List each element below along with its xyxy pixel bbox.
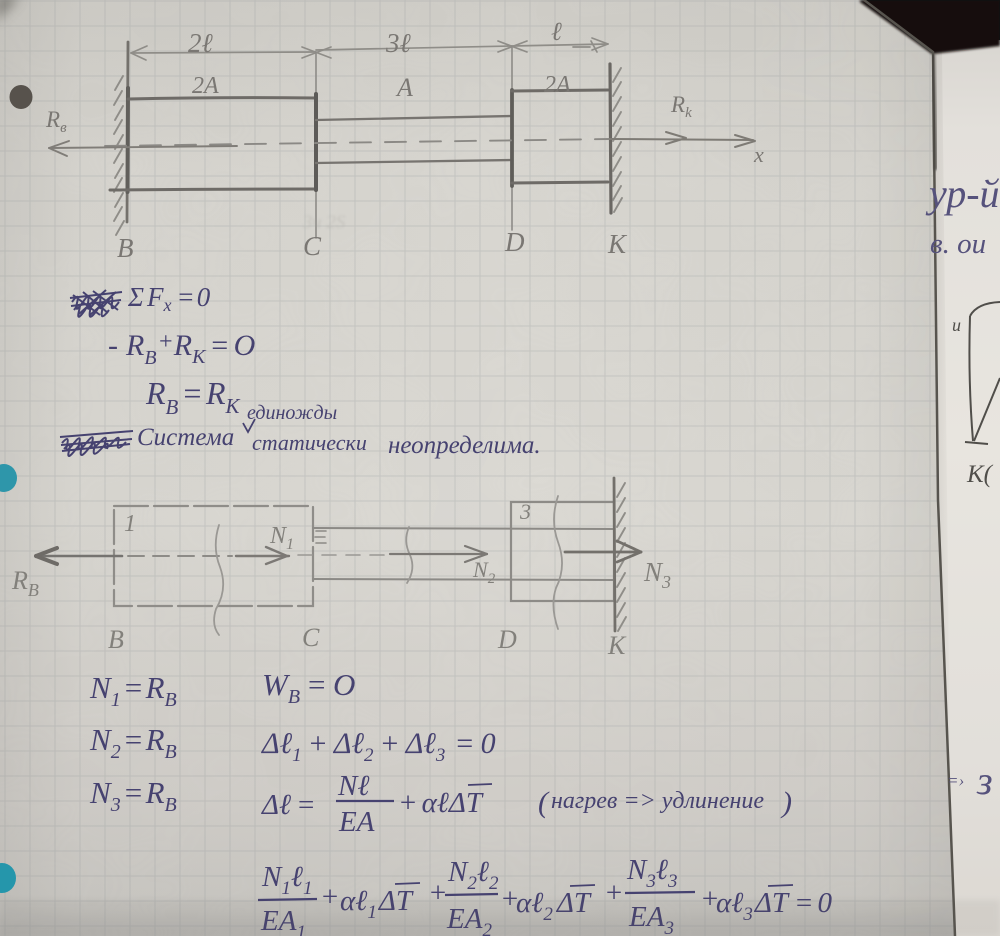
svg-text:Система: Система — [137, 424, 234, 451]
svg-text:A: A — [395, 73, 413, 102]
svg-text:N1=RB: N1=RB — [89, 670, 177, 711]
svg-text:B: B — [117, 233, 134, 263]
svg-text:x: x — [753, 142, 764, 167]
svg-text:K: K — [607, 631, 627, 660]
svg-text:D: D — [497, 625, 517, 654]
svg-text:ур-й: ур-й — [925, 171, 1000, 216]
svg-text:=›: =› — [947, 771, 964, 790]
svg-text:статически: статически — [252, 430, 367, 455]
svg-text:з: з — [976, 758, 993, 803]
svg-text:N2=RB: N2=RB — [89, 722, 177, 763]
svg-text:неопределима.: неопределима. — [388, 432, 541, 459]
svg-text:C: C — [303, 231, 322, 261]
svg-text:Δℓ=: Δℓ= — [261, 789, 316, 821]
svg-text:C: C — [302, 623, 320, 652]
svg-text:EA: EA — [338, 806, 375, 838]
svg-text:единожды: единожды — [247, 402, 337, 424]
svg-text:): ) — [780, 786, 792, 819]
svg-text:2A: 2A — [544, 72, 571, 98]
svg-text:2ℓ: 2ℓ — [188, 28, 214, 58]
svg-text:+αℓΔT: +αℓΔT — [398, 787, 484, 819]
svg-text:3ч 2S: 3ч 2S — [302, 212, 346, 233]
svg-text:2A: 2A — [192, 73, 219, 99]
svg-text:К(: К( — [966, 461, 994, 488]
svg-text:N3=RB: N3=RB — [89, 775, 177, 816]
svg-text:1: 1 — [124, 511, 136, 537]
svg-text:ℓ: ℓ — [551, 17, 562, 46]
svg-text:3: 3 — [519, 499, 531, 524]
svg-text:в. ои: в. ои — [930, 228, 986, 260]
svg-text:WB=O: WB=O — [262, 667, 355, 708]
svg-text:B: B — [108, 625, 124, 654]
svg-text:K: K — [607, 229, 628, 259]
svg-text:D: D — [504, 227, 525, 257]
svg-text:3ℓ: 3ℓ — [385, 28, 412, 58]
svg-text:Nℓ: Nℓ — [337, 770, 369, 802]
svg-text:и: и — [952, 315, 961, 335]
